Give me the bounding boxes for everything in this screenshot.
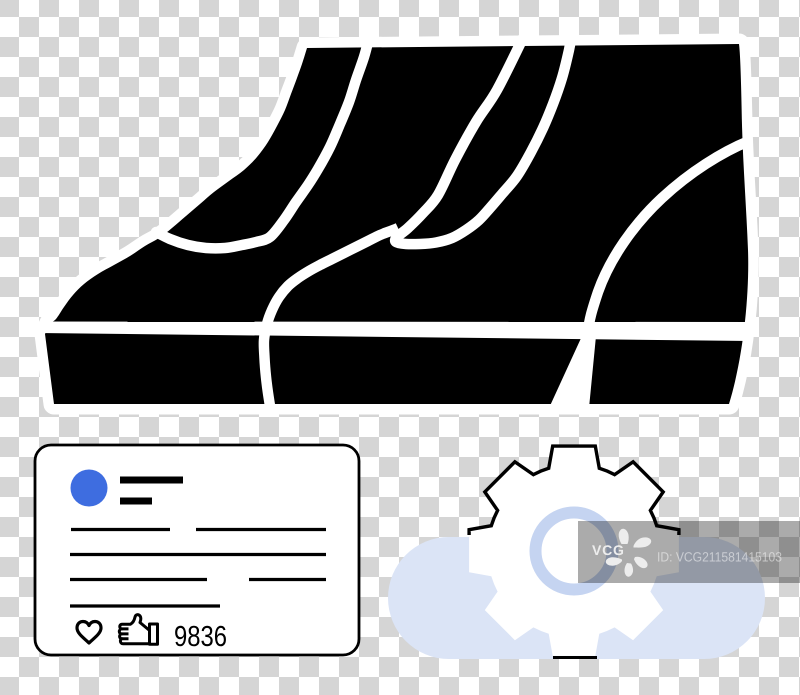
svg-text:ID: VCG211581415103: ID: VCG211581415103: [657, 550, 782, 565]
svg-text:9836: 9836: [174, 621, 227, 653]
svg-text:VCG: VCG: [592, 542, 625, 558]
